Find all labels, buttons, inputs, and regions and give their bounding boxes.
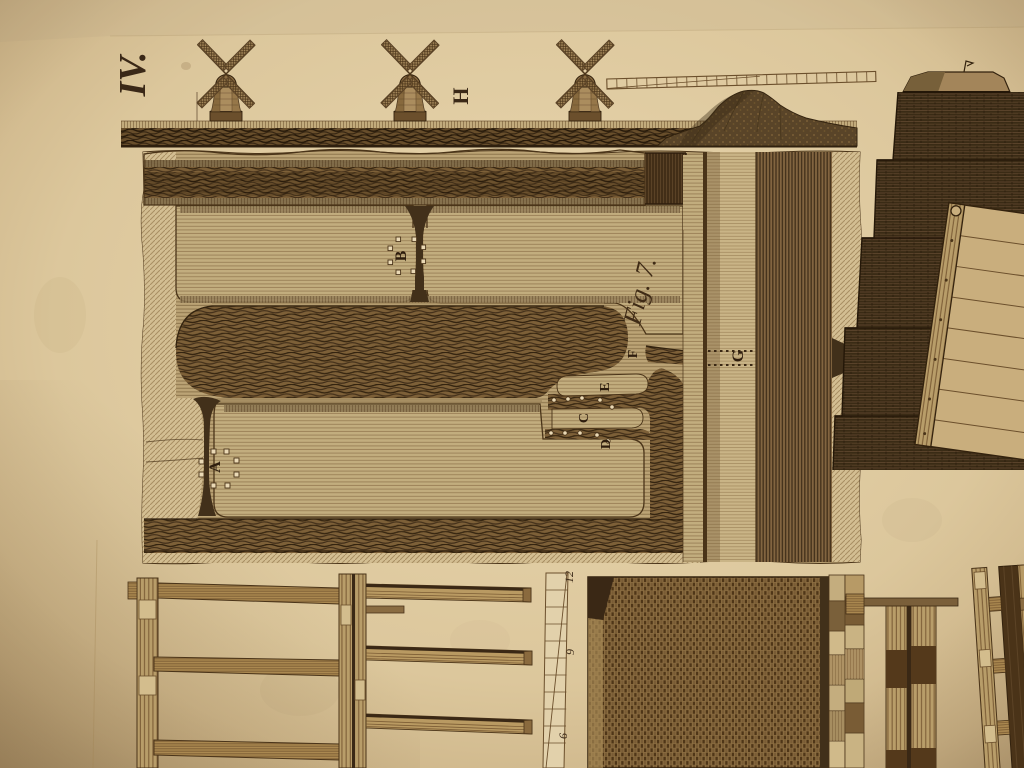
- svg-text:9: 9: [563, 649, 577, 655]
- svg-text:H: H: [448, 87, 473, 104]
- svg-text:G: G: [730, 349, 747, 362]
- svg-text:E: E: [598, 382, 613, 391]
- svg-text:C: C: [577, 413, 592, 423]
- svg-text:IV.: IV.: [112, 52, 154, 98]
- svg-text:B: B: [393, 250, 410, 261]
- svg-text:F: F: [626, 350, 641, 359]
- svg-text:D: D: [599, 439, 614, 449]
- svg-text:12: 12: [562, 571, 576, 583]
- svg-text:A: A: [207, 461, 224, 473]
- svg-text:6: 6: [556, 733, 570, 739]
